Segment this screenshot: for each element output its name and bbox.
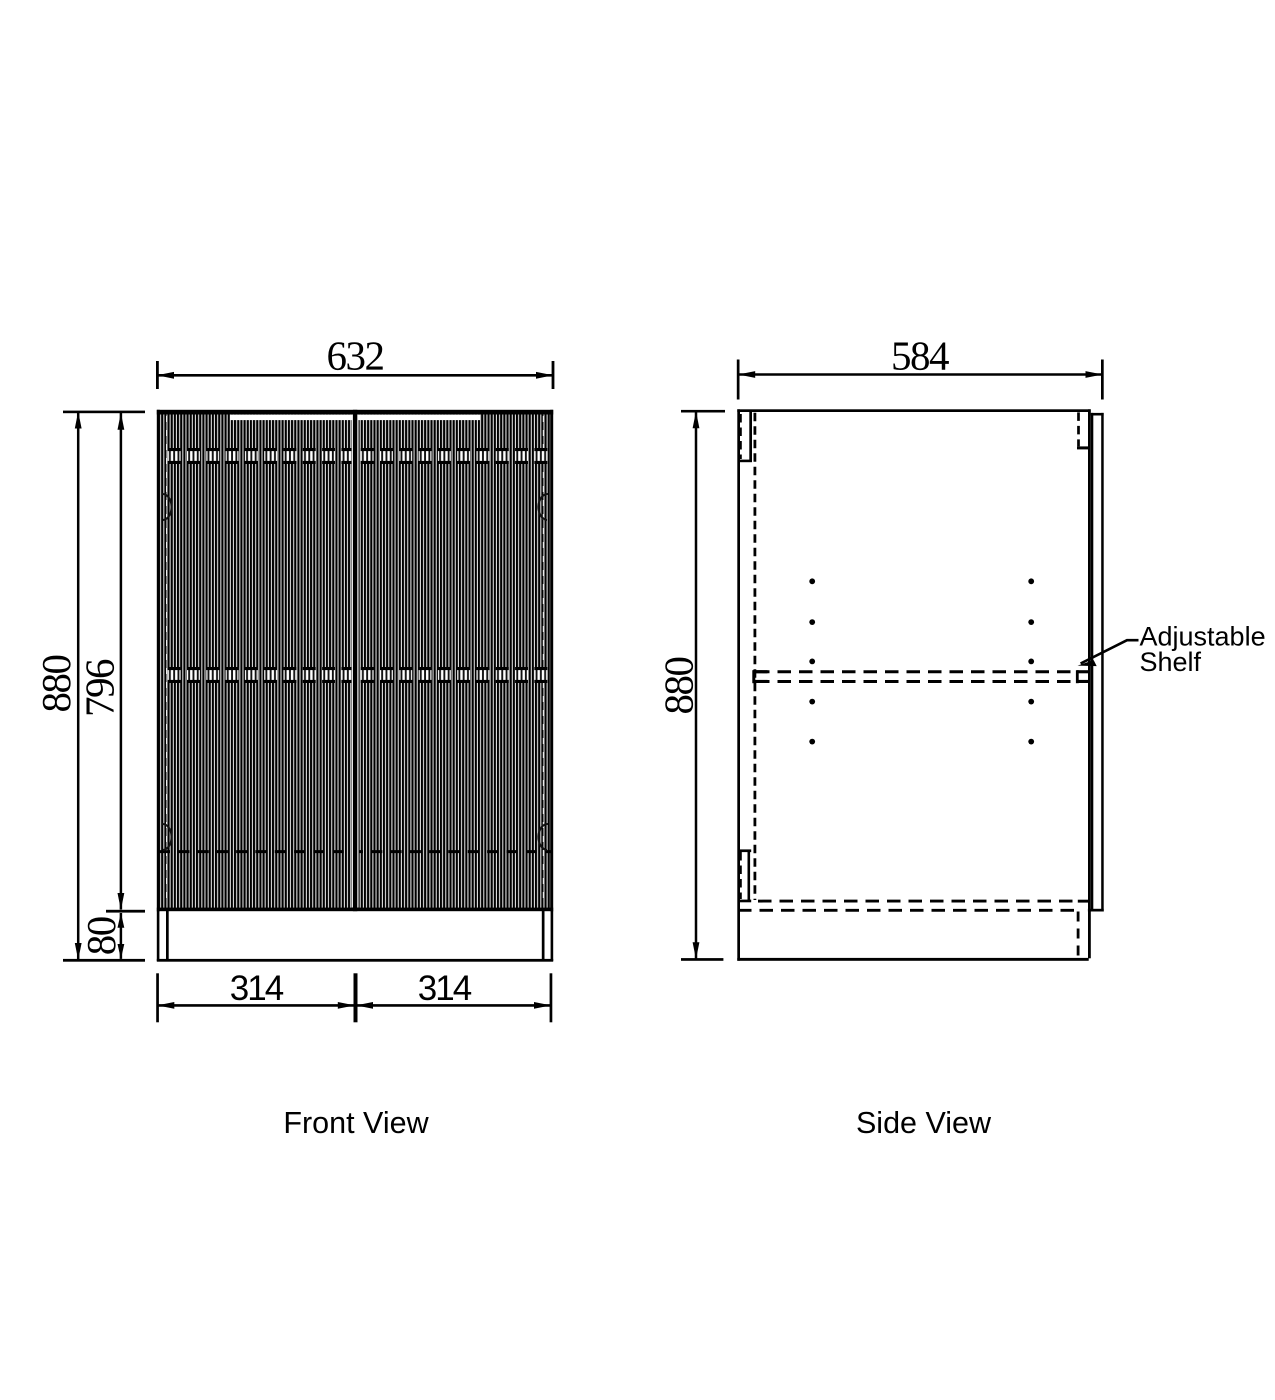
svg-text:Front View: Front View: [283, 1106, 429, 1140]
svg-text:314: 314: [418, 969, 472, 1008]
svg-text:796: 796: [77, 659, 123, 717]
svg-text:Side View: Side View: [856, 1106, 992, 1140]
svg-text:80: 80: [78, 917, 124, 955]
svg-text:880: 880: [655, 658, 701, 715]
svg-text:314: 314: [230, 969, 284, 1008]
svg-text:584: 584: [891, 333, 949, 379]
svg-text:880: 880: [33, 656, 79, 713]
svg-text:632: 632: [327, 333, 384, 379]
svg-text:Shelf: Shelf: [1140, 647, 1202, 677]
